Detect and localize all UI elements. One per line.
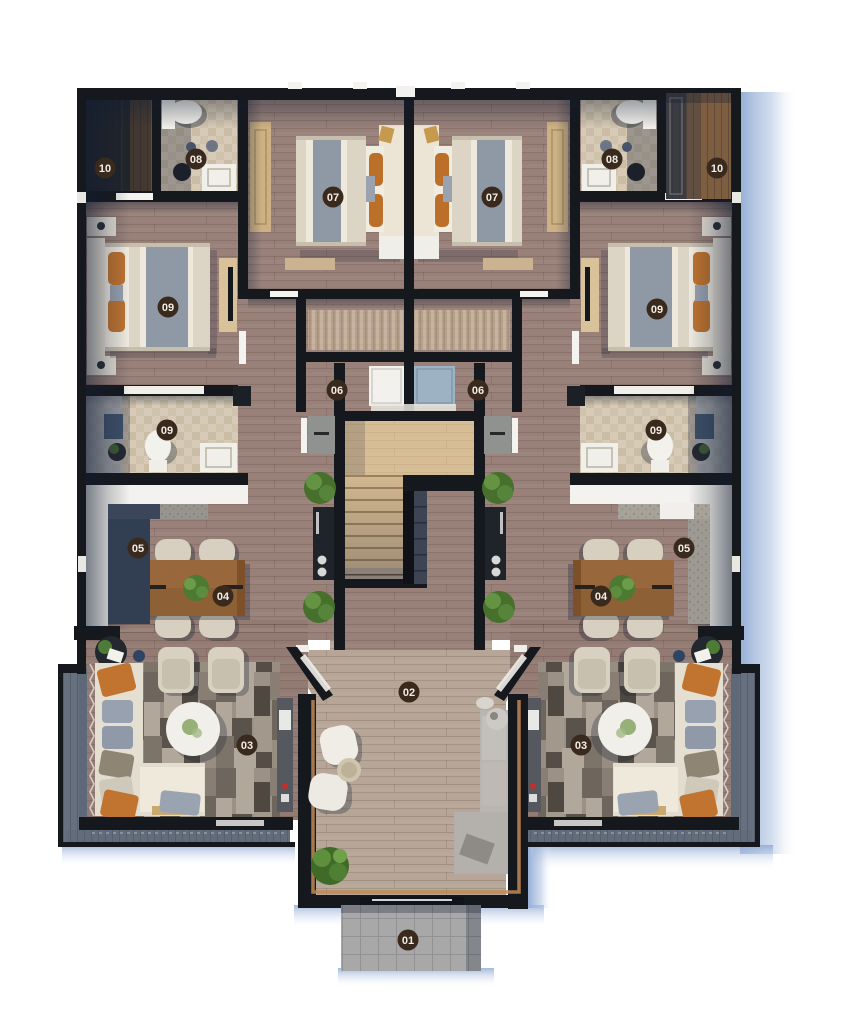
svg-text:10: 10 (711, 163, 723, 175)
svg-text:04: 04 (217, 591, 230, 603)
svg-text:02: 02 (403, 687, 415, 699)
svg-text:09: 09 (650, 425, 662, 437)
svg-text:05: 05 (132, 543, 144, 555)
svg-text:07: 07 (327, 192, 339, 204)
svg-text:06: 06 (472, 385, 484, 397)
svg-text:03: 03 (575, 740, 587, 752)
svg-text:08: 08 (190, 154, 202, 166)
svg-text:09: 09 (161, 425, 173, 437)
svg-text:09: 09 (162, 302, 174, 314)
svg-text:03: 03 (241, 740, 253, 752)
svg-text:06: 06 (331, 385, 343, 397)
svg-text:08: 08 (606, 154, 618, 166)
svg-text:09: 09 (651, 304, 663, 316)
svg-text:05: 05 (678, 543, 690, 555)
svg-text:07: 07 (486, 192, 498, 204)
svg-text:04: 04 (595, 591, 608, 603)
svg-text:01: 01 (402, 935, 414, 947)
svg-text:10: 10 (99, 163, 111, 175)
